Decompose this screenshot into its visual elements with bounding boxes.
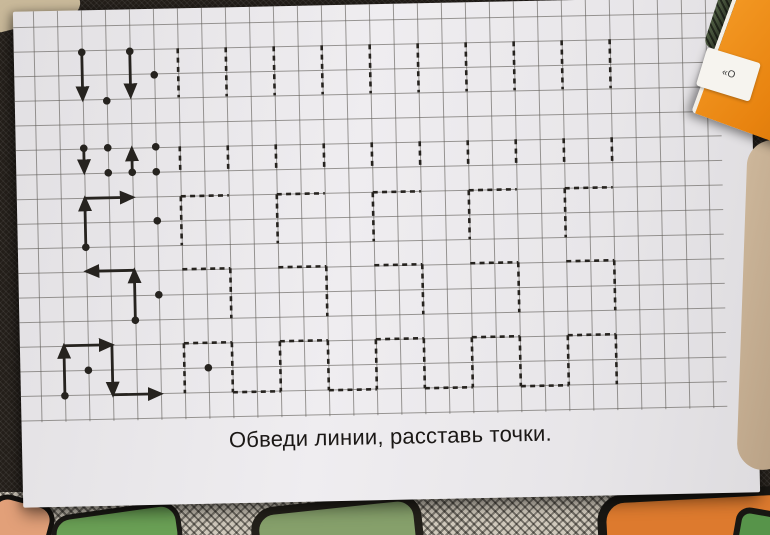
- dashed-line-vertical: [614, 260, 615, 310]
- guide-dot: [155, 291, 163, 299]
- dashed-line-vertical: [564, 138, 565, 163]
- dashed-line-horizontal: [470, 262, 518, 263]
- dashed-line-vertical: [472, 337, 473, 387]
- dashed-line-vertical: [468, 140, 469, 165]
- dashed-line-vertical: [373, 192, 374, 241]
- dashed-line-vertical: [324, 143, 325, 168]
- guide-dot: [150, 71, 158, 79]
- dashed-line-horizontal: [233, 391, 281, 392]
- dashed-line-vertical: [230, 268, 231, 318]
- dashed-line-horizontal: [374, 264, 422, 265]
- dashed-line-horizontal: [469, 189, 517, 190]
- dashed-line-horizontal: [373, 191, 421, 192]
- guide-dot: [131, 316, 139, 324]
- dashed-line-vertical: [520, 336, 521, 386]
- guide-dot: [78, 48, 86, 56]
- dashed-line-vertical: [181, 196, 182, 245]
- dashed-line-vertical: [469, 190, 470, 239]
- example-arrow: [85, 197, 133, 198]
- guide-dot: [104, 169, 112, 177]
- dashed-line-vertical: [424, 338, 425, 388]
- guide-dot: [126, 47, 134, 55]
- example-arrow: [64, 345, 112, 346]
- dashed-line-horizontal: [277, 193, 325, 194]
- dashed-line-vertical: [228, 145, 229, 170]
- dashed-line-vertical: [616, 334, 617, 384]
- dashed-line-horizontal: [278, 266, 326, 267]
- guide-dot: [205, 364, 213, 372]
- example-arrow: [113, 394, 161, 395]
- guide-dot: [103, 97, 111, 105]
- example-arrow: [134, 270, 135, 320]
- example-arrow: [85, 198, 86, 247]
- dashed-line-vertical: [568, 335, 569, 385]
- dashed-line-vertical: [178, 48, 179, 97]
- dashed-line-vertical: [562, 40, 563, 89]
- dashed-line-vertical: [226, 47, 227, 96]
- dashed-line-vertical: [276, 144, 277, 169]
- guide-dot: [104, 144, 112, 152]
- dashed-line-vertical: [328, 340, 329, 390]
- exercise-drawing-layer: [13, 0, 760, 508]
- dashed-line-horizontal: [184, 342, 232, 343]
- dashed-line-horizontal: [376, 338, 424, 339]
- guide-dot: [152, 168, 160, 176]
- dashed-line-vertical: [370, 44, 371, 93]
- dashed-line-vertical: [372, 142, 373, 167]
- dashed-line-vertical: [232, 342, 233, 392]
- example-arrow: [112, 345, 113, 395]
- dashed-line-horizontal: [181, 195, 229, 196]
- photo-scene: Обведи линии, расставь точки. «О: [0, 0, 770, 535]
- dashed-line-vertical: [422, 264, 423, 314]
- guide-dot: [153, 217, 161, 225]
- example-arrow: [64, 346, 65, 396]
- example-arrow: [130, 51, 131, 96]
- dashed-line-horizontal: [521, 385, 569, 386]
- workbook-page: Обведи линии, расставь точки.: [13, 0, 760, 508]
- dashed-line-vertical: [612, 137, 613, 162]
- dashed-line-horizontal: [568, 334, 616, 335]
- dashed-line-vertical: [466, 42, 467, 91]
- dashed-line-vertical: [326, 266, 327, 316]
- dashed-line-vertical: [180, 146, 181, 171]
- example-arrow: [86, 270, 134, 271]
- dashed-line-vertical: [420, 141, 421, 166]
- guide-dot: [128, 168, 136, 176]
- dashed-line-vertical: [518, 262, 519, 312]
- dashed-line-horizontal: [565, 187, 613, 188]
- dashed-line-vertical: [280, 341, 281, 391]
- dashed-line-horizontal: [425, 387, 473, 388]
- guide-dot: [80, 144, 88, 152]
- dashed-line-horizontal: [472, 336, 520, 337]
- dashed-line-vertical: [418, 43, 419, 92]
- dashed-line-vertical: [565, 188, 566, 237]
- dashed-line-vertical: [516, 139, 517, 164]
- dashed-line-vertical: [376, 339, 377, 389]
- dashed-line-horizontal: [182, 268, 230, 269]
- dashed-line-horizontal: [566, 260, 614, 261]
- guide-dot: [152, 143, 160, 151]
- dashed-line-vertical: [274, 46, 275, 95]
- dashed-line-vertical: [514, 41, 515, 90]
- guide-dot: [85, 366, 93, 374]
- dashed-line-horizontal: [329, 389, 377, 390]
- guide-dot: [61, 392, 69, 400]
- dashed-line-horizontal: [280, 340, 328, 341]
- dashed-line-vertical: [184, 343, 185, 393]
- dashed-line-vertical: [610, 39, 611, 88]
- booklet-label: «О: [696, 47, 761, 102]
- example-arrow: [82, 52, 83, 99]
- dashed-line-vertical: [277, 194, 278, 243]
- guide-dot: [82, 243, 90, 251]
- dashed-line-vertical: [322, 45, 323, 94]
